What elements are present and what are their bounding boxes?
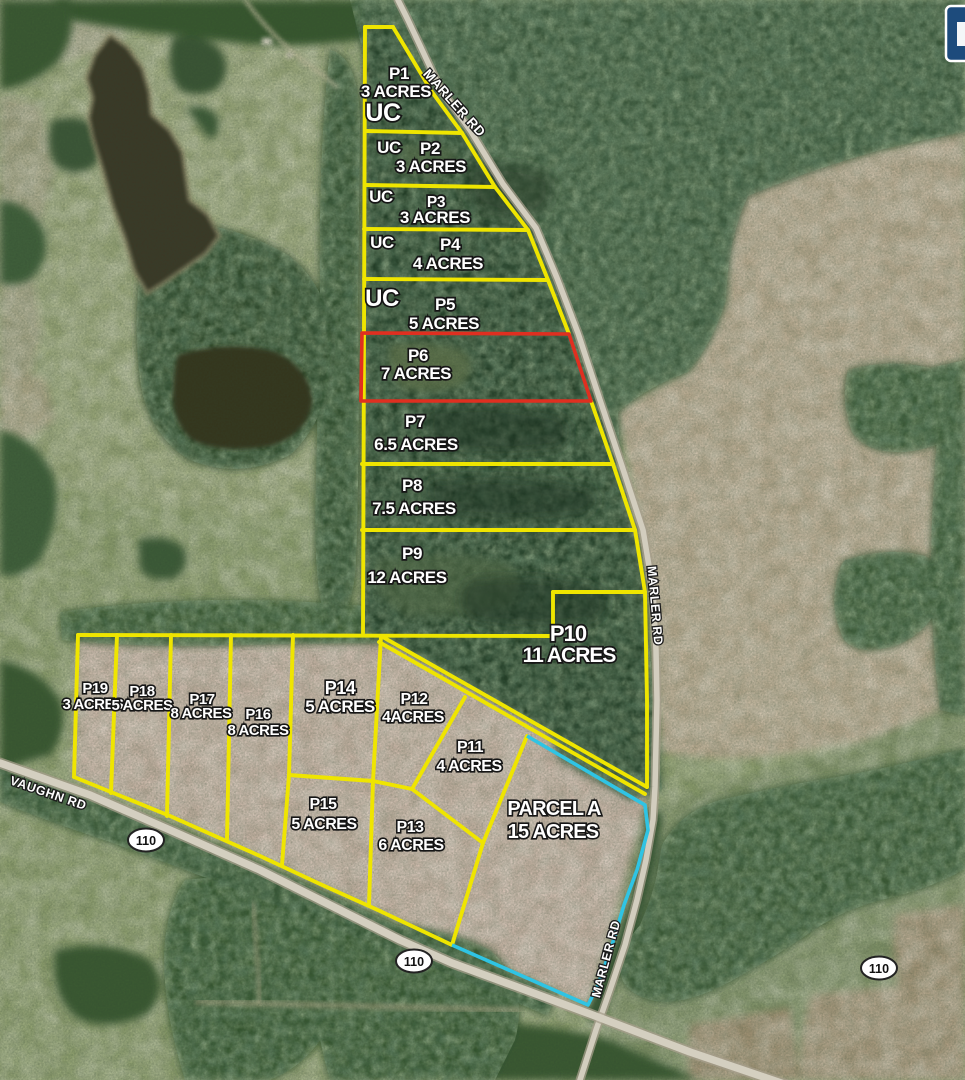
svg-text:P1: P1: [389, 64, 409, 83]
svg-text:4 ACRES: 4 ACRES: [413, 254, 483, 273]
svg-text:UC: UC: [365, 99, 401, 127]
svg-text:6 ACRES: 6 ACRES: [378, 837, 444, 854]
svg-text:UC: UC: [377, 138, 401, 157]
svg-text:12 ACRES: 12 ACRES: [367, 568, 446, 587]
svg-text:110: 110: [404, 955, 424, 969]
svg-text:4 ACRES: 4 ACRES: [436, 758, 502, 775]
svg-text:8 ACRES: 8 ACRES: [228, 722, 289, 739]
svg-text:5 ACRES: 5 ACRES: [291, 816, 357, 833]
svg-text:P12: P12: [401, 691, 429, 708]
svg-text:P13: P13: [397, 819, 425, 836]
svg-text:P16: P16: [245, 706, 270, 723]
svg-text:15 ACRES: 15 ACRES: [508, 821, 599, 843]
svg-text:7 ACRES: 7 ACRES: [381, 364, 451, 383]
svg-text:UC: UC: [370, 233, 394, 252]
svg-text:8 ACRES: 8 ACRES: [171, 705, 232, 722]
svg-text:110: 110: [136, 834, 156, 848]
svg-text:P2: P2: [420, 139, 440, 158]
svg-text:5 ACRES: 5 ACRES: [409, 314, 479, 333]
svg-text:P15: P15: [310, 796, 338, 813]
svg-text:P19: P19: [82, 680, 107, 697]
svg-text:UC: UC: [369, 187, 393, 206]
svg-text:P10: P10: [550, 621, 587, 646]
svg-text:6.5 ACRES: 6.5 ACRES: [374, 435, 458, 454]
svg-text:110: 110: [869, 962, 889, 976]
svg-text:3 ACRES: 3 ACRES: [396, 157, 466, 176]
svg-text:5 ACRES: 5 ACRES: [112, 697, 173, 714]
svg-text:UC: UC: [365, 285, 399, 312]
svg-text:7.5 ACRES: 7.5 ACRES: [372, 499, 456, 518]
svg-text:4ACRES: 4ACRES: [382, 709, 445, 726]
svg-text:P4: P4: [440, 235, 461, 254]
svg-text:PARCEL A: PARCEL A: [507, 798, 601, 820]
svg-text:11 ACRES: 11 ACRES: [523, 644, 617, 667]
svg-text:P9: P9: [402, 544, 422, 563]
svg-text:P6: P6: [408, 346, 428, 365]
svg-text:5 ACRES: 5 ACRES: [305, 697, 375, 716]
svg-text:P7: P7: [405, 412, 425, 431]
svg-text:P14: P14: [325, 678, 356, 698]
svg-text:P11: P11: [457, 739, 484, 756]
svg-text:P5: P5: [435, 295, 455, 314]
svg-text:P8: P8: [402, 476, 422, 495]
svg-text:3 ACRES: 3 ACRES: [400, 208, 470, 227]
